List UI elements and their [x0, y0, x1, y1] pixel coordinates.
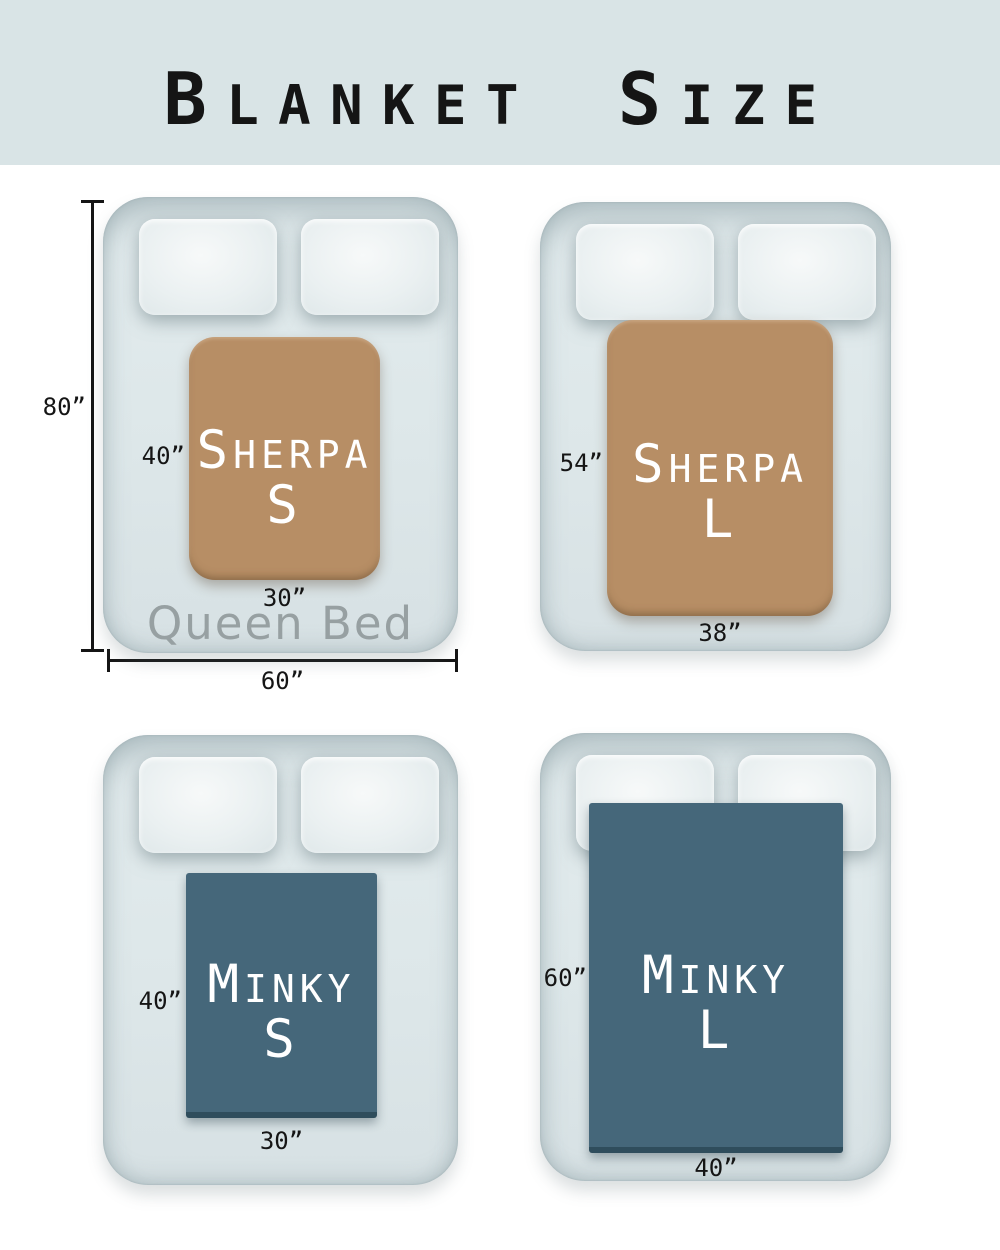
blanket-name-line2: L — [589, 1003, 843, 1058]
blanket-sherpa-l: Sherpa L — [607, 320, 833, 616]
bed-diagram-sherpa-l: Sherpa L 54” 38” — [540, 202, 891, 651]
blanket-size-infographic: Blanket size 80” 60” Sherpa S 40” 30” Qu… — [0, 0, 1000, 1250]
bed-diagram-sherpa-s: Sherpa S 40” 30” Queen Bed — [103, 197, 458, 653]
blanket-name-sherpa-l: Sherpa L — [607, 437, 833, 547]
blanket-height-label: 40” — [134, 988, 182, 1014]
bed-height-label: 80” — [36, 394, 86, 420]
blanket-name-line2: L — [607, 492, 833, 547]
pillow-left — [576, 224, 714, 320]
page-title: Blanket size — [164, 64, 837, 136]
blanket-sherpa-s: Sherpa S — [189, 337, 380, 580]
title-word-blanket: Blanket — [164, 64, 538, 136]
bed-width-label: 60” — [107, 668, 458, 694]
bed-height-dimension-line — [91, 200, 94, 652]
pillow-left — [139, 757, 277, 853]
blanket-minky-l: Minky L — [589, 803, 843, 1153]
blanket-width-label: 30” — [186, 1128, 377, 1154]
blanket-width-label: 38” — [607, 620, 833, 646]
blanket-name-line1: Sherpa — [189, 423, 380, 478]
pillow-right — [301, 219, 439, 315]
blanket-width-label: 40” — [589, 1155, 843, 1181]
pillow-right — [738, 224, 876, 320]
blanket-height-label: 40” — [137, 443, 185, 469]
title-banner: Blanket size — [0, 0, 1000, 165]
blanket-name-line2: S — [186, 1012, 377, 1067]
bed-diagram-minky-l: Minky L 60” 40” — [540, 733, 891, 1181]
blanket-height-label: 60” — [542, 965, 587, 991]
blanket-name-minky-l: Minky L — [589, 947, 843, 1057]
blanket-name-line1: Minky — [186, 957, 377, 1012]
blanket-name-line1: Sherpa — [607, 437, 833, 492]
blanket-name-minky-s: Minky S — [186, 957, 377, 1067]
blanket-name-sherpa-s: Sherpa S — [189, 423, 380, 533]
blanket-name-line2: S — [189, 478, 380, 533]
pillow-left — [139, 219, 277, 315]
blanket-name-line1: Minky — [589, 947, 843, 1002]
blanket-minky-s: Minky S — [186, 873, 377, 1118]
bed-width-dimension-line — [107, 659, 458, 662]
blanket-height-label: 54” — [555, 450, 603, 476]
pillow-right — [301, 757, 439, 853]
bed-diagram-minky-s: Minky S 40” 30” — [103, 735, 458, 1185]
bed-name-label: Queen Bed — [103, 601, 458, 647]
title-word-size: size — [618, 64, 837, 136]
